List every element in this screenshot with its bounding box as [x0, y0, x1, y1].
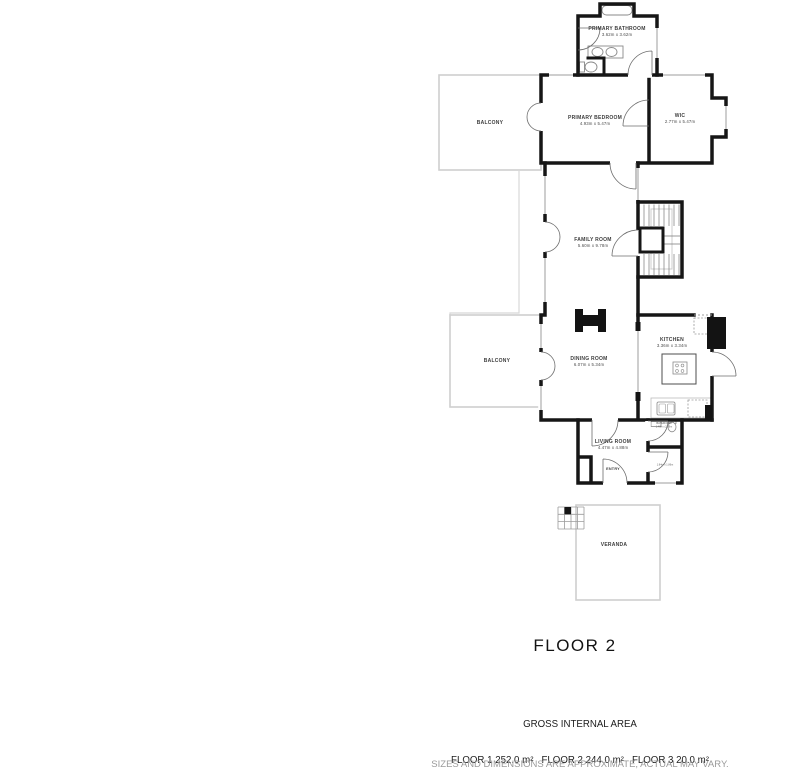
veranda-outline	[576, 505, 660, 600]
fireplace-icon	[583, 315, 598, 326]
floorplan-page: PRIMARY BATHROOM 3.62m x 3.62m PRIMARY B…	[0, 0, 807, 776]
sink-icon	[606, 48, 617, 57]
door-arc	[612, 230, 638, 256]
staircase	[640, 205, 680, 276]
room-label-small-bathroom: BATHROOM	[656, 421, 672, 425]
door-arc	[648, 452, 668, 472]
appliance-icon	[705, 405, 712, 420]
patio-connector-outline	[450, 170, 519, 315]
stair-treads-lower	[644, 254, 679, 275]
door-arc	[628, 51, 652, 75]
stair-treads-upper	[644, 205, 679, 227]
room-label-veranda: VERANDA	[601, 542, 628, 548]
stair-landing	[640, 228, 663, 252]
floor-plan-drawing: PRIMARY BATHROOM 3.62m x 3.62m PRIMARY B…	[0, 0, 807, 620]
bathtub-icon	[602, 6, 632, 16]
room-label-balcony-top: BALCONY	[477, 120, 504, 126]
room-dims-primary-bedroom: 4.93m x 5.47m	[580, 121, 611, 126]
room-dims-small-closet: 1.84m x 1.86m	[657, 464, 674, 467]
door-arc	[623, 100, 649, 126]
disclaimer-text: SIZES AND DIMENSIONS ARE APPROXIMATE, AC…	[431, 759, 728, 770]
dishwasher-icon	[688, 400, 707, 417]
door-arc	[603, 459, 627, 483]
fireplace-icon	[598, 309, 606, 332]
room-dims-dining-room: 6.07m x 5.34m	[574, 362, 605, 367]
room-dims-kitchen: 3.36m x 3.34m	[657, 343, 688, 348]
room-dims-primary-bathroom: 3.62m x 3.62m	[602, 32, 633, 37]
door-jamb	[636, 322, 641, 331]
toilet-icon	[585, 62, 597, 72]
room-dims-wic: 2.77m x 5.47m	[665, 119, 696, 124]
room-dims-living-room: 4.47m x 4.88m	[598, 445, 629, 450]
fireplace-icon	[575, 309, 583, 332]
door-arc	[610, 163, 636, 189]
room-label-entry: ENTRY	[606, 467, 620, 471]
door-arc	[712, 352, 736, 376]
door-jamb	[636, 392, 641, 401]
room-dims-family-room: 5.60m x 9.78m	[578, 243, 609, 248]
toilet-tank	[580, 62, 585, 72]
doors	[527, 28, 736, 483]
room-labels: PRIMARY BATHROOM 3.62m x 3.62m PRIMARY B…	[477, 26, 696, 548]
floor-title: FLOOR 2	[533, 636, 616, 656]
kitchen-fixtures	[651, 318, 711, 418]
windows	[541, 28, 726, 483]
area-heading: GROSS INTERNAL AREA	[371, 719, 788, 731]
sink-icon	[592, 48, 603, 57]
fridge-icon	[707, 317, 726, 349]
room-dims-small-bathroom: 1.48m x 2.39m	[656, 426, 673, 429]
room-label-balcony-bottom: BALCONY	[484, 358, 511, 364]
veranda-trellis	[558, 507, 584, 529]
kitchen-island	[662, 354, 696, 384]
